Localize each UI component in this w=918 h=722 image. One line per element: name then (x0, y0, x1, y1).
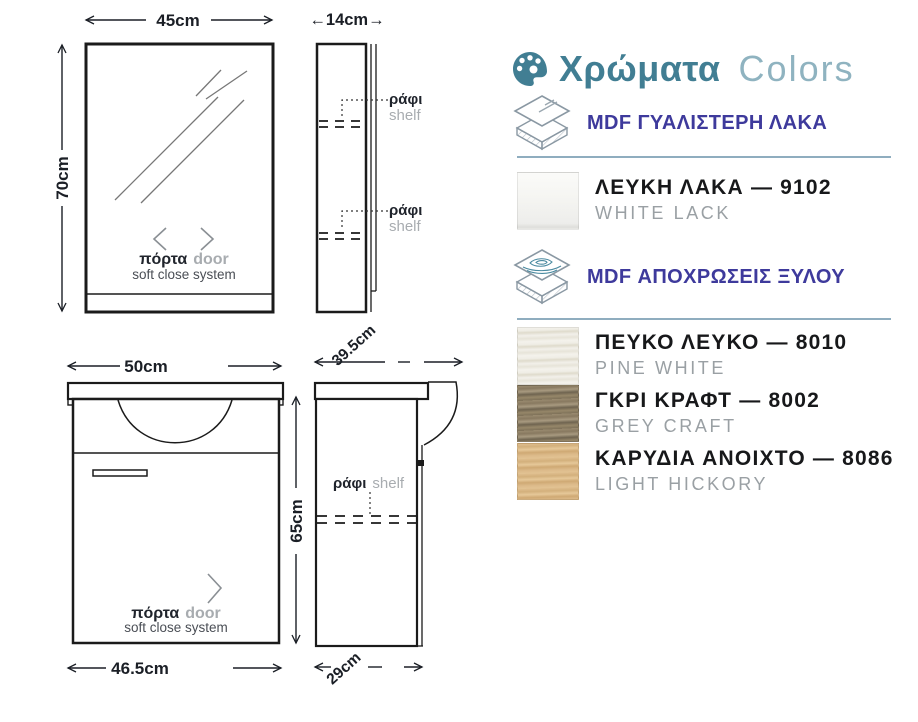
vanity-height-label: 65cm (287, 499, 306, 542)
door-label-greek: πόρτα (139, 251, 187, 268)
mdf-gloss-lacquer-icon (511, 92, 573, 154)
mirror-cabinet-side-view: ράφι shelf ράφι shelf ←14cm→ (309, 11, 422, 312)
separator-line (517, 156, 891, 158)
shelf-label-greek-2: ράφι (389, 202, 422, 219)
finish-subtitle: LIGHT HICKORY (595, 474, 894, 495)
shelf-label-greek-1: ράφι (389, 91, 422, 108)
finish-title: ΓΚΡΙ ΚΡΑΦΤ — 8002 (595, 389, 820, 413)
vanity-bottom-width-label: 46.5cm (111, 659, 169, 678)
finish-row-grey-craft: ΓΚΡΙ ΚΡΑΦΤ — 8002 GREY CRAFT (517, 385, 820, 442)
side-body (316, 399, 417, 646)
material-row-wood-shades: MDF ΑΠΟΧΡΩΣΕΙΣ ΞΥΛΟΥ (511, 246, 845, 308)
finish-row-white-lack: ΛΕΥΚΗ ΛΑΚΑ — 9102 WHITE LACK (517, 172, 832, 230)
mirror-depth-label: ←14cm→ (309, 11, 384, 29)
colors-title-greek: Χρώματα (559, 48, 721, 90)
finish-row-light-hickory: ΚΑΡΥΔΙΑ ΑΝΟΙΧΤΟ — 8086 LIGHT HICKORY (517, 443, 894, 500)
finish-text: ΚΑΡΥΔΙΑ ΑΝΟΙΧΤΟ — 8086 LIGHT HICKORY (595, 443, 894, 500)
material-label-wood-shades: MDF ΑΠΟΧΡΩΣΕΙΣ ΞΥΛΟΥ (587, 266, 845, 289)
door-label-english: door (193, 251, 229, 268)
mdf-wood-shades-icon (511, 246, 573, 308)
shelf-label-english-1: shelf (389, 107, 422, 124)
finish-text: ΓΚΡΙ ΚΡΑΦΤ — 8002 GREY CRAFT (595, 385, 820, 442)
vanity-top-width-label: 50cm (124, 357, 167, 376)
finish-row-pine-white: ΠΕΥΚΟ ΛΕΥΚΟ — 8010 PINE WHITE (517, 327, 847, 385)
vanity-bottom-depth-label: 29cm (324, 649, 365, 688)
side-cabinet-outline (317, 44, 366, 312)
finish-subtitle: PINE WHITE (595, 358, 847, 379)
material-label-gloss-lacquer: MDF ΓΥΑΛΙΣΤΕΡΗ ΛΑΚΑ (587, 112, 827, 135)
mirror-width-label: 45cm (156, 11, 199, 30)
mirror-height-label: 70cm (53, 156, 72, 199)
side-knob (418, 460, 424, 466)
product-spec-sheet: πόρταdoor soft close system 45cm 70cm (0, 0, 918, 722)
soft-close-label: soft close system (124, 620, 228, 635)
finish-title: ΠΕΥΚΟ ΛΕΥΚΟ — 8010 (595, 331, 847, 355)
mirror-cabinet-front-view: πόρταdoor soft close system 45cm 70cm (53, 11, 273, 312)
finish-subtitle: GREY CRAFT (595, 416, 820, 437)
soft-close-label: soft close system (132, 267, 236, 282)
vanity-countertop (68, 383, 283, 399)
palette-icon (511, 50, 549, 88)
vanity-side-view: 39.5cm ράφιshelf 29cm (315, 322, 462, 688)
shelf-label-english-2: shelf (389, 218, 422, 235)
material-row-gloss-lacquer: MDF ΓΥΑΛΙΣΤΕΡΗ ΛΑΚΑ (511, 92, 827, 154)
white-lack-swatch (517, 172, 579, 230)
finish-text: ΠΕΥΚΟ ΛΕΥΚΟ — 8010 PINE WHITE (595, 327, 847, 385)
colors-panel-header: Χρώματα Colors (511, 48, 855, 90)
side-countertop (315, 383, 428, 399)
finish-title: ΛΕΥΚΗ ΛΑΚΑ — 9102 (595, 176, 832, 200)
finish-title: ΚΑΡΥΔΙΑ ΑΝΟΙΧΤΟ — 8086 (595, 447, 894, 471)
light-hickory-swatch (517, 443, 579, 500)
grey-craft-swatch (517, 385, 579, 442)
vanity-front-view: 50cm πόρταdoor soft close system 46.5cm … (68, 357, 306, 678)
shelf-label-english-3: shelf (372, 475, 405, 492)
separator-line (517, 318, 891, 320)
pine-white-swatch (517, 327, 579, 385)
mirror-door-label: πόρταdoor (139, 251, 229, 268)
finish-subtitle: WHITE LACK (595, 203, 832, 224)
finish-text: ΛΕΥΚΗ ΛΑΚΑ — 9102 WHITE LACK (595, 172, 832, 230)
shelf-label-greek-3: ράφι (333, 475, 366, 492)
technical-drawings: πόρταdoor soft close system 45cm 70cm (0, 0, 500, 722)
colors-title-latin: Colors (739, 48, 855, 90)
